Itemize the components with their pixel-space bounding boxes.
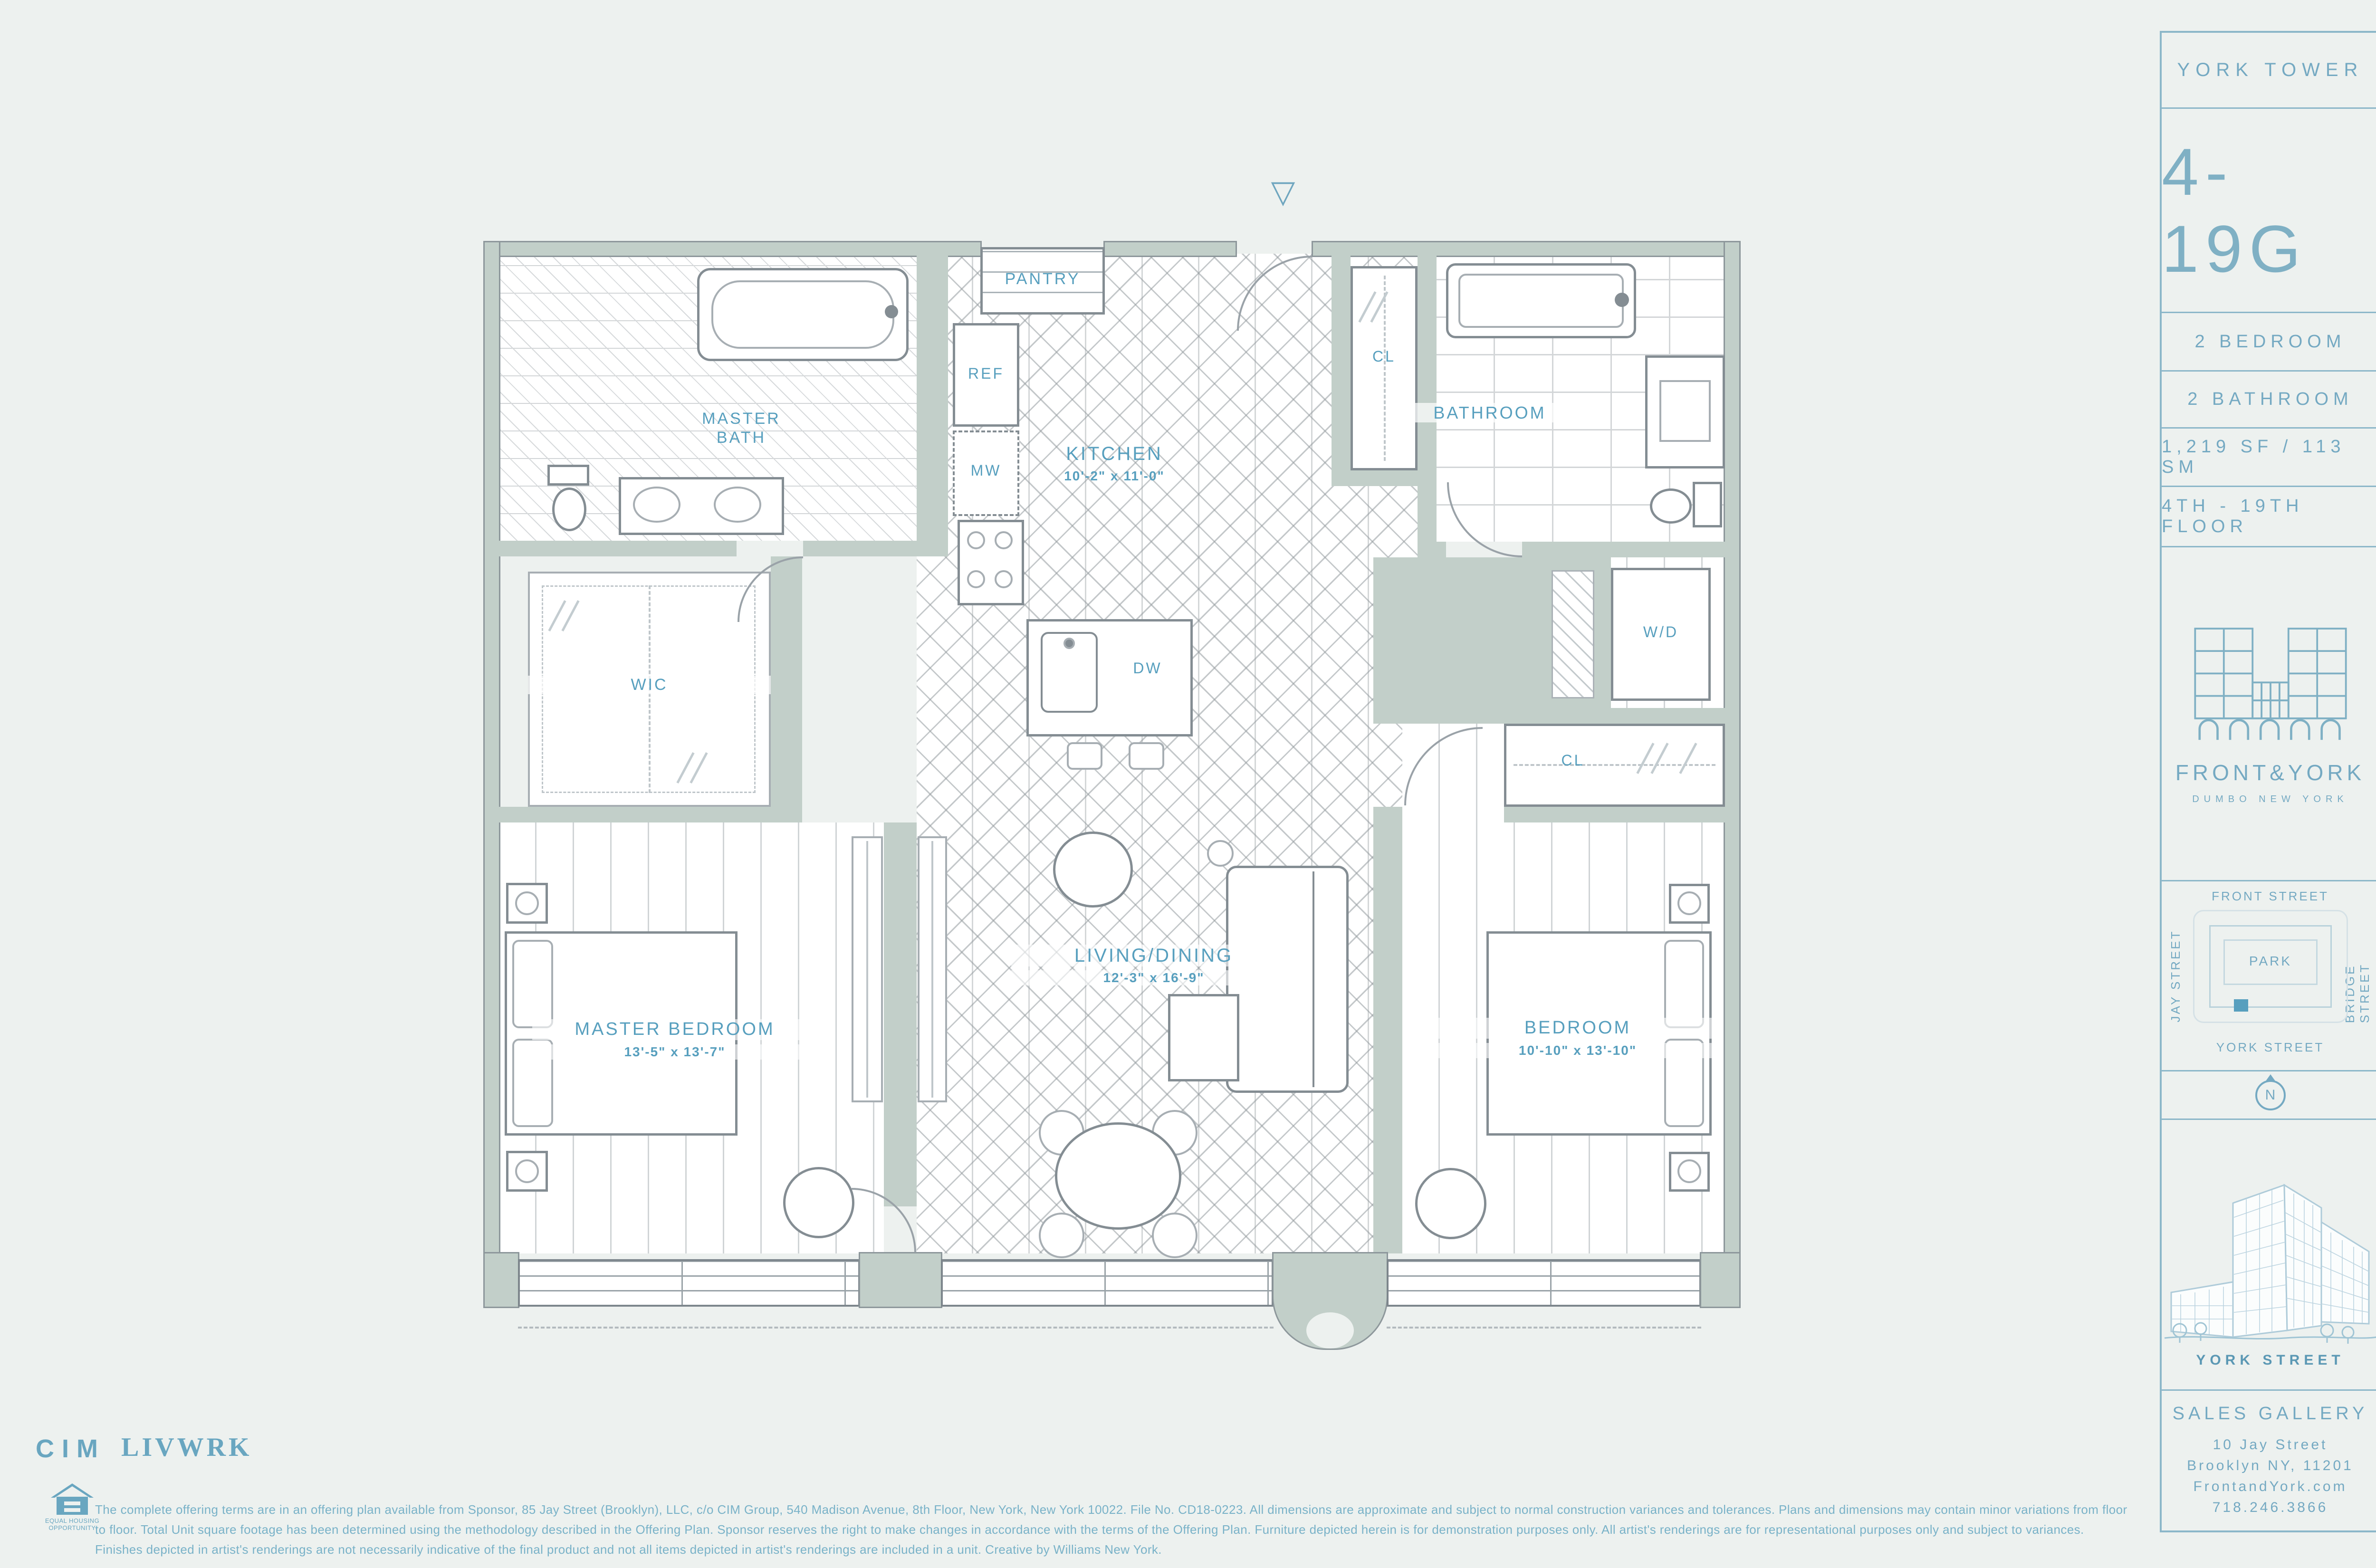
wall-hall-closet-left	[1332, 254, 1351, 470]
hall-closet-label: CL	[1351, 348, 1418, 365]
wall-master-bath-bottom-2	[803, 541, 917, 556]
bedroom-label: BEDROOM	[1435, 1018, 1720, 1039]
logo-cim: CIM	[36, 1434, 105, 1463]
master-bedroom-dims: 13'-5" x 13'-7"	[532, 1044, 817, 1060]
wall-bathroom-bottom-1	[1418, 542, 1446, 557]
master-bedroom-chair	[783, 1167, 854, 1238]
bedroom-dims: 10'-10" x 13'-10"	[1435, 1043, 1720, 1058]
sales-address-line2: Brooklyn NY, 11201	[2187, 1455, 2354, 1476]
master-toilet-tank	[547, 465, 589, 486]
wall-wic-bottom	[499, 807, 802, 822]
living-dims: 12'-3" x 16'-9"	[1011, 970, 1296, 985]
map-jay-street-label: JAY STREET	[2168, 929, 2183, 1022]
sales-gallery-title: SALES GALLERY	[2173, 1404, 2368, 1424]
spec-bedroom-label: 2 BEDROOM	[2194, 332, 2346, 352]
dining-chair	[1039, 1213, 1084, 1258]
spec-floors-label: 4TH - 19TH FLOOR	[2162, 496, 2376, 537]
spec-area-label: 1,219 SF / 113 SM	[2162, 437, 2376, 478]
disclaimer-line3: Finishes depicted in artist's renderings…	[95, 1542, 1162, 1557]
sidebar-map: FRONT STREET JAY STREET BRIDGE STREET PA…	[2162, 881, 2376, 1071]
sidebar-unit-number: 4-19G	[2162, 109, 2376, 313]
stool	[1067, 742, 1102, 770]
wall-master-bedroom-right	[884, 822, 917, 1206]
wall-bathroom-bottom-2	[1522, 542, 1725, 557]
wic-label: WIC	[528, 676, 771, 694]
wall-bottom-pillar	[860, 1253, 941, 1307]
info-sidebar: YORK TOWER 4-19G 2 BEDROOM 2 BATHROOM 1,…	[2160, 31, 2376, 1532]
kitchen-label: KITCHEN	[972, 443, 1257, 465]
building-rendering	[2162, 1141, 2376, 1350]
pillow	[1664, 940, 1704, 1028]
bedroom-closet-label: CL	[1530, 752, 1616, 769]
unit-number-label: 4-19G	[2162, 134, 2376, 287]
wall-master-bath-right	[917, 254, 948, 556]
compass-needle	[2266, 1074, 2275, 1081]
sofa-back-line	[1313, 871, 1314, 1087]
dining-chair	[1152, 1213, 1198, 1258]
bathroom-door-swing	[1447, 482, 1522, 557]
wall-top-c	[1313, 242, 1739, 256]
map-front-street-label: FRONT STREET	[2162, 889, 2376, 904]
master-bedroom-label: MASTER BEDROOM	[532, 1019, 817, 1040]
living-label: LIVING/DINING	[1011, 945, 1296, 966]
master-bath-label-line2: BATH	[637, 429, 846, 447]
wall-bottom-corner-right	[1701, 1253, 1739, 1307]
sidebar-spec-floors: 4TH - 19TH FLOOR	[2162, 487, 2376, 547]
armchair	[1053, 832, 1133, 908]
entry-marker-icon: ▽	[1252, 173, 1314, 210]
front-and-york-building-icon	[2190, 623, 2351, 746]
sidebar-compass: N	[2162, 1071, 2376, 1120]
brand-tagline: DUMBO NEW YORK	[2192, 794, 2348, 805]
master-bath-label-line1: MASTER	[637, 410, 846, 428]
wardrobe-door-line	[866, 841, 868, 1098]
master-toilet-bowl	[552, 488, 586, 531]
compass-icon: N	[2255, 1080, 2286, 1110]
bathroom-toilet-tank	[1693, 482, 1722, 527]
lamp	[1677, 1159, 1701, 1183]
master-tub-faucet	[885, 305, 898, 318]
rendering-caption: YORK STREET	[2196, 1352, 2344, 1368]
dining-table	[1055, 1122, 1181, 1230]
wall-hall-bedroom-lower	[1373, 807, 1402, 1253]
spec-bathroom-label: 2 BATHROOM	[2187, 389, 2353, 410]
master-bath-door-swing	[738, 556, 803, 622]
map-unit-marker	[2234, 999, 2248, 1012]
sidebar-spec-area: 1,219 SF / 113 SM	[2162, 429, 2376, 487]
bedroom-chair	[1415, 1168, 1486, 1239]
wall-left	[485, 242, 499, 1259]
wall-hall-bedroom-upper	[1373, 557, 1402, 724]
burner	[995, 570, 1013, 588]
sidebar-tower-name: YORK TOWER	[2162, 33, 2376, 109]
vanity-sink	[633, 487, 680, 523]
floor-plan: ▽ PANTRY CL REF MW	[485, 238, 1739, 1373]
kitchen-dims: 10'-2" x 11'-0"	[972, 468, 1257, 484]
sidebar-rendering: YORK STREET	[2162, 1120, 2376, 1391]
hall-closet-rod	[1384, 276, 1386, 461]
wardrobe-door-line	[931, 841, 933, 1098]
wall-master-bath-bottom-1	[499, 541, 737, 556]
lamp	[1677, 891, 1701, 915]
logo-livwrk: LIVWRK	[121, 1432, 252, 1463]
lamp	[515, 891, 539, 915]
wall-right	[1725, 242, 1739, 1259]
stool	[1129, 742, 1164, 770]
dishwasher-label: DW	[1117, 660, 1178, 677]
washer-dryer-label: W/D	[1611, 623, 1711, 641]
balcony-edge-right	[1387, 1327, 1701, 1329]
sales-phone: 718.246.3866	[2213, 1497, 2328, 1518]
balcony-edge-left	[518, 1327, 1274, 1329]
wall-top-a	[485, 242, 980, 256]
sales-website: FrontandYork.com	[2193, 1476, 2347, 1497]
window-bedroom	[1387, 1259, 1701, 1307]
refrigerator-label: REF	[953, 365, 1019, 382]
burner	[995, 531, 1013, 549]
island-faucet	[1063, 638, 1075, 649]
wall-top-b	[1105, 242, 1236, 256]
burner	[967, 531, 985, 549]
coffee-table	[1168, 994, 1239, 1081]
sidebar-spec-bedroom: 2 BEDROOM	[2162, 313, 2376, 372]
map-park-label: PARK	[2223, 954, 2318, 969]
stove	[958, 520, 1024, 605]
bathroom-sink	[1659, 380, 1711, 442]
sidebar-sales-gallery: SALES GALLERY 10 Jay Street Brooklyn NY,…	[2162, 1391, 2376, 1530]
master-tub-basin	[711, 280, 894, 349]
wall-wd-left	[1597, 557, 1611, 708]
floor-lamp	[1207, 840, 1234, 867]
mechanical-shaft	[1552, 570, 1594, 698]
burner	[967, 570, 985, 588]
bathroom-tub-basin	[1458, 274, 1624, 328]
disclaimer-line1: The complete offering terms are in an of…	[95, 1502, 2127, 1517]
vanity-sink	[714, 487, 761, 523]
window-living	[941, 1259, 1274, 1307]
wall-bottom-corner-left	[485, 1253, 518, 1307]
sidebar-spec-bathroom: 2 BATHROOM	[2162, 372, 2376, 429]
pillow	[512, 940, 553, 1028]
sales-address-line1: 10 Jay Street	[2213, 1434, 2328, 1455]
equal-housing-icon	[51, 1483, 94, 1515]
disclaimer-line2: to floor. Total Unit square footage has …	[95, 1522, 2084, 1537]
balcony-bay-notch	[1306, 1312, 1354, 1348]
pantry-label: PANTRY	[980, 270, 1105, 288]
map-york-street-label: YORK STREET	[2162, 1040, 2376, 1055]
bathroom-shower-head	[1615, 293, 1629, 307]
bathroom-label: BATHROOM	[1411, 403, 1568, 422]
window-master-bedroom	[518, 1259, 860, 1307]
lamp	[515, 1159, 539, 1183]
wall-below-wd	[1402, 708, 1725, 724]
sidebar-brand: FRONT&YORK DUMBO NEW YORK	[2162, 547, 2376, 881]
brand-name: FRONT&YORK	[2175, 760, 2365, 785]
wall-below-closet	[1504, 807, 1725, 822]
bathroom-toilet-bowl	[1650, 488, 1692, 524]
compass-n-label: N	[2265, 1087, 2276, 1103]
tower-name-label: YORK TOWER	[2177, 59, 2364, 81]
